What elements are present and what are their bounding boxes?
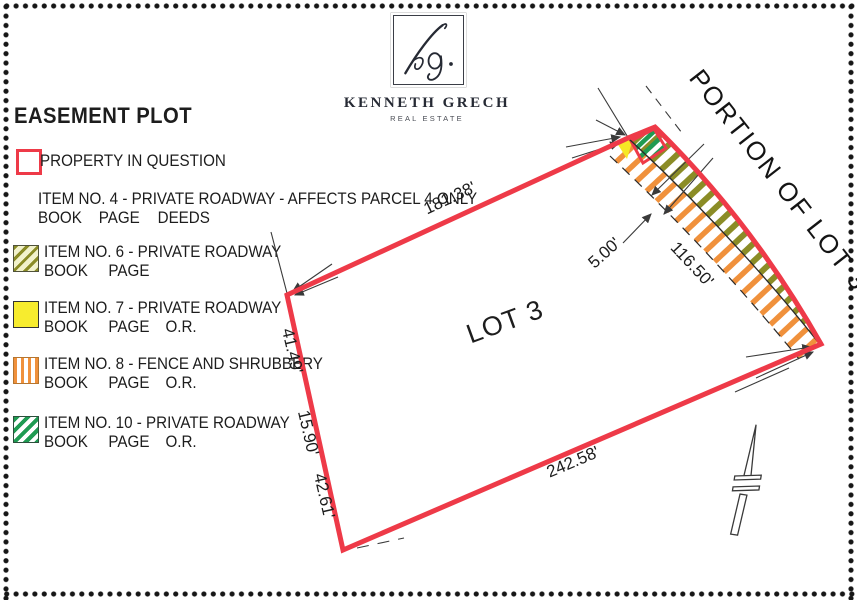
dim-left-middle: 15.90' (294, 408, 323, 457)
dim-left-upper: 41.49' (278, 326, 307, 375)
dim-strip-width: 5.00' (584, 234, 624, 272)
easement-plot-page: KENNETH GRECH REAL ESTATE EASEMENT PLOT … (0, 0, 857, 600)
north-arrow-icon (726, 423, 769, 538)
plot-drawing: 181.38' 116.50' 5.00' 242.58' 41.49' 15.… (0, 0, 857, 600)
dim-left-lower: 42.61' (310, 471, 339, 520)
lot-label: LOT 3 (462, 294, 547, 349)
